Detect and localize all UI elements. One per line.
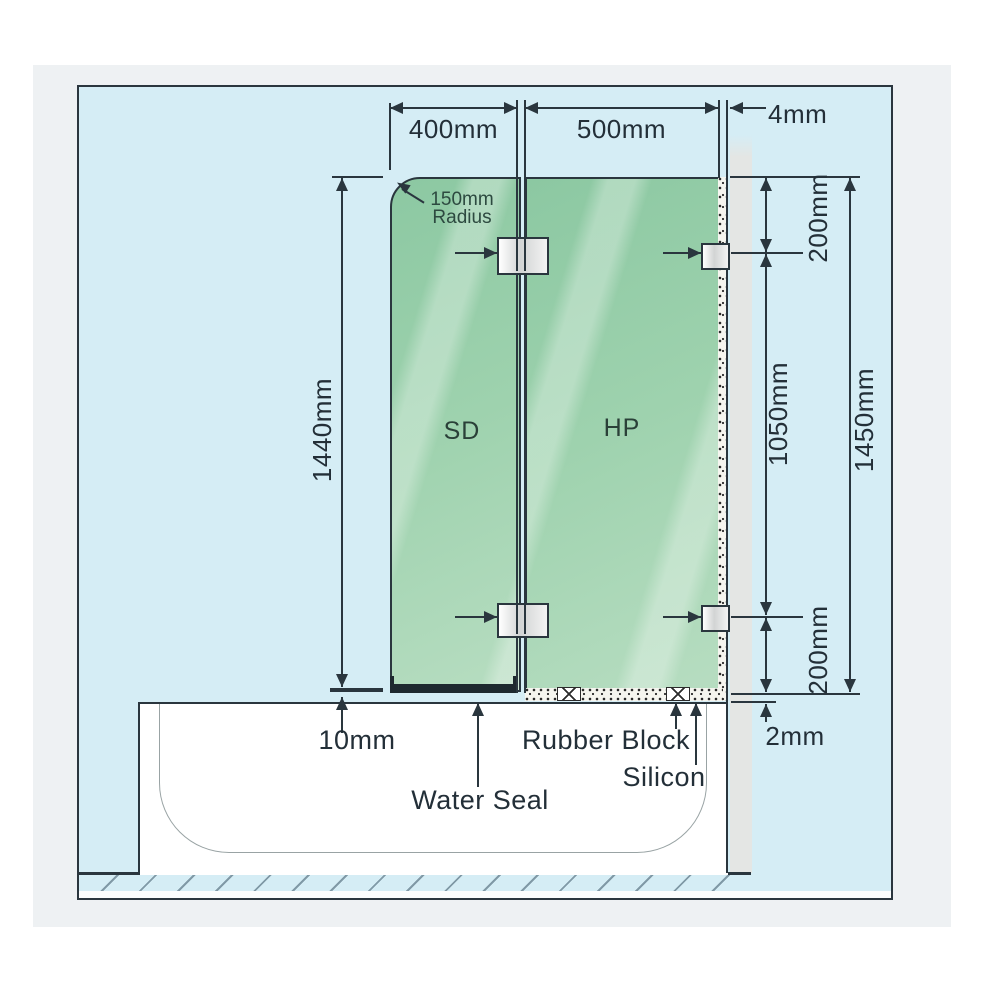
panel-label-sd: SD — [432, 417, 492, 445]
wall-strip — [730, 135, 752, 873]
dim-1440mm-line — [336, 178, 348, 687]
dim-4mm-label: 4mm — [768, 99, 848, 130]
callout-water-seal-arrow — [472, 703, 484, 787]
diagram-canvas: 400mm 500mm 4mm 1440mm 200mm 1050mm 1450… — [77, 85, 893, 900]
rubber-block-left — [557, 687, 581, 701]
hinge-bottom-pointer — [455, 611, 497, 623]
dim-400mm-label: 400mm — [380, 114, 527, 145]
water-seal-end-left — [390, 676, 394, 693]
hinge-joint-through-bottom2 — [524, 603, 526, 634]
silicon-label: Silicon — [609, 762, 719, 793]
bracket-bottom-pointer — [663, 611, 701, 623]
radius-annotation: 150mm Radius — [419, 191, 505, 227]
tub-top-right-tick — [731, 701, 776, 703]
dim-1450mm-label: 1450mm — [850, 360, 878, 480]
dim-4mm-arrow — [730, 102, 766, 114]
dim-2mm-label: 2mm — [750, 721, 840, 752]
hinge-top-pointer — [455, 247, 497, 259]
glass-plane-extension-line — [718, 100, 720, 178]
dim-1050mm-label: 1050mm — [764, 354, 792, 474]
silicon-strip-bottom — [525, 688, 723, 701]
right-top-extension — [730, 176, 860, 178]
wall-bracket-bottom — [701, 605, 730, 632]
bottom-white-strip — [79, 891, 891, 898]
dim-200mm-bottom-label: 200mm — [805, 605, 831, 695]
floor-hatching — [81, 875, 749, 891]
center-hinge-bottom — [497, 603, 549, 638]
product-image-card: 400mm 500mm 4mm 1440mm 200mm 1050mm 1450… — [33, 65, 951, 927]
radius-annotation-line2: Radius — [419, 209, 505, 227]
page-background: 400mm 500mm 4mm 1440mm 200mm 1050mm 1450… — [0, 0, 1000, 1000]
hinge-joint-through-bottom — [516, 603, 518, 634]
dim-2mm-arrow — [760, 704, 772, 722]
hinge-joint-through-top — [516, 237, 518, 271]
dim-200mm-bottom-line — [760, 618, 772, 692]
left-bottom-tick — [330, 688, 383, 692]
bracket-top-pointer — [663, 247, 701, 259]
dim-500mm-line — [525, 102, 718, 114]
water-seal-label: Water Seal — [400, 785, 560, 816]
right-bottom-extension — [731, 693, 860, 695]
water-seal-channel — [390, 684, 517, 693]
wall-face-line — [726, 100, 728, 873]
wall-bracket-top — [701, 243, 730, 270]
dim-200mm-top-line — [760, 178, 772, 252]
center-hinge-top — [497, 237, 549, 275]
dim-200mm-top-label: 200mm — [805, 173, 831, 263]
hinge-joint-through-top2 — [524, 237, 526, 271]
rubber-block-label: Rubber Block — [516, 725, 696, 756]
dim-1440mm-label: 1440mm — [308, 370, 336, 490]
panel-label-hp: HP — [592, 414, 652, 442]
dim-400mm-line — [390, 102, 517, 114]
rubber-block-right — [666, 687, 690, 701]
dim-500mm-label: 500mm — [525, 114, 718, 145]
dim-10mm-label: 10mm — [302, 725, 412, 756]
